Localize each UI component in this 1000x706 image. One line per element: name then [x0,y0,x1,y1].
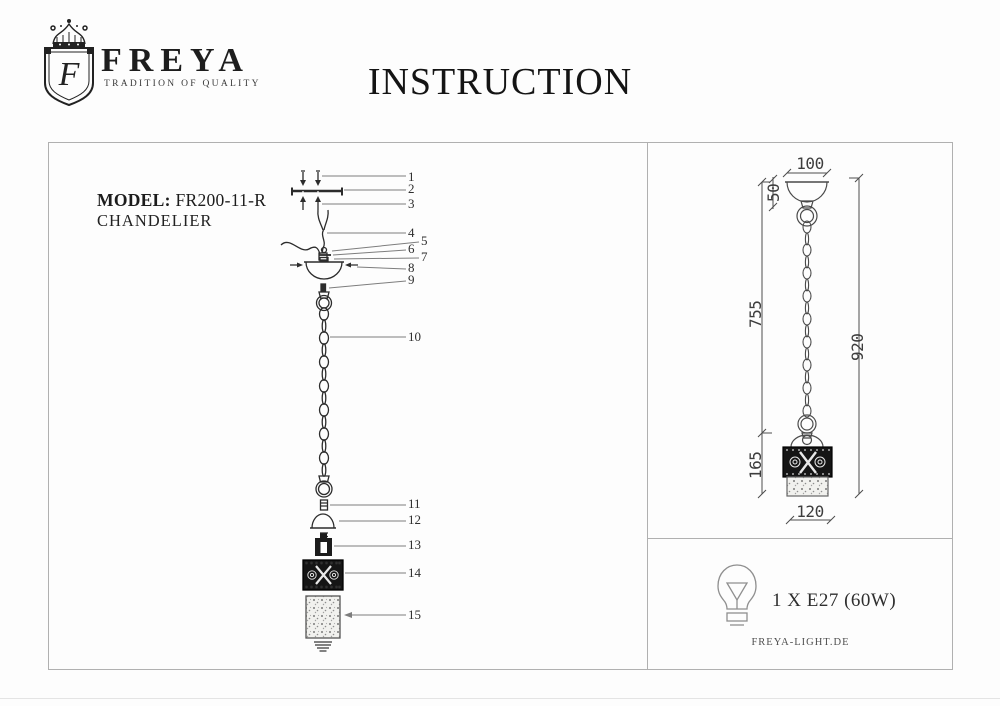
dimension-drawing [648,143,953,538]
part-number: 9 [408,273,430,287]
drawing-pendant-body [783,415,832,496]
bulb-spec: 1 X E27 (60W) [772,590,896,612]
page-title: INSTRUCTION [290,60,710,104]
part-bolt [321,284,326,291]
light-bulb-icon [712,560,764,634]
bulb-base-lines [314,642,332,651]
part-glass-shade [306,596,340,638]
dim-shade-drop: 165 [746,452,765,479]
leader-arrowhead [344,612,352,618]
part-number: 11 [408,497,430,511]
part-number: 10 [408,330,430,344]
part-socket [315,534,332,557]
part-canopy [290,262,358,279]
dim-canopy-width: 100 [780,154,840,173]
instruction-sheet: F FREYA TRADITION OF QUALITY INSTRUCTION… [0,0,1000,706]
drawing-top-ring [797,206,817,226]
part-number: 14 [408,566,430,580]
leader-lines [322,176,419,615]
part-mounting-bracket [292,188,342,196]
power-cord [281,242,320,254]
dim-shade-width: 120 [780,502,840,521]
part-mounting-screws-top [300,171,321,186]
part-number: 3 [408,197,430,211]
exploded-view-diagram [48,142,647,669]
brand-tagline: TRADITION OF QUALITY [104,79,261,89]
part-small-fittings [319,248,331,262]
part-canopy-screws [300,196,321,210]
part-chain [320,308,329,476]
page-bottom-edge [0,698,1000,699]
part-threaded-stud [321,500,328,510]
dim-chain-drop: 755 [746,301,765,328]
freya-crest-icon: F [40,14,98,108]
logo-monogram: F [58,56,81,93]
part-number: 12 [408,513,430,527]
drawing-chain [803,221,811,417]
website: FREYA-LIGHT.DE [648,637,953,648]
brand-name: FREYA [101,42,250,80]
part-number: 2 [408,182,430,196]
part-ornate-band [303,560,343,590]
part-cap-dome [310,514,336,528]
part-number: 15 [408,608,430,622]
part-number: 13 [408,538,430,552]
dim-overall-drop: 920 [848,334,867,361]
dim-canopy-drop: 50 [764,184,783,202]
part-wire [318,210,328,253]
bottom-ring [316,476,332,497]
horizontal-divider [648,538,953,539]
drawing-canopy [785,182,829,208]
